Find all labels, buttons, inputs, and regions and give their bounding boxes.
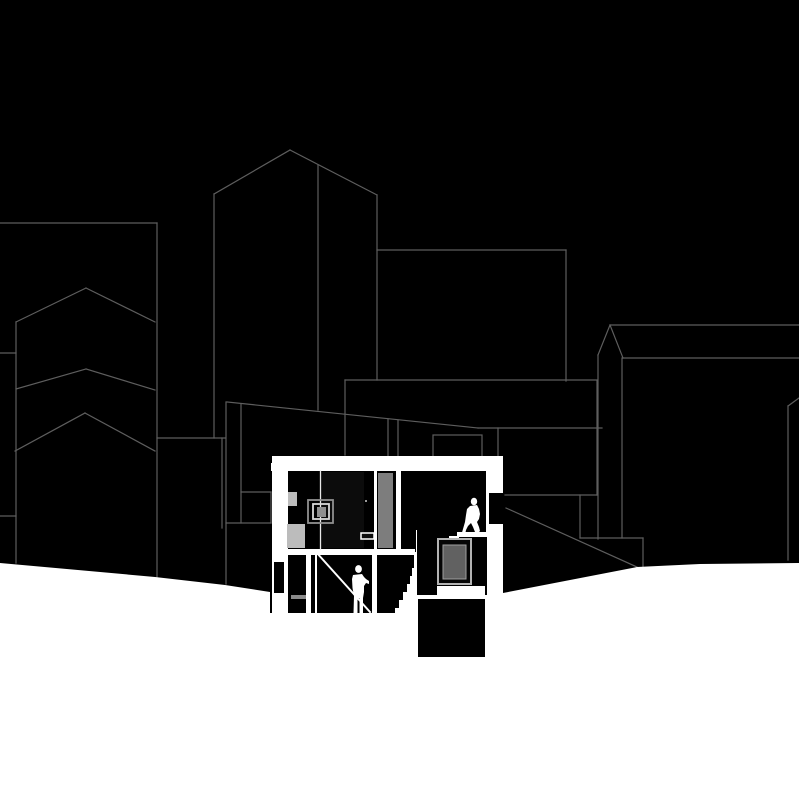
door-panel <box>321 472 364 548</box>
basement-slit <box>437 586 485 595</box>
stair-room-stud-2 <box>315 555 317 613</box>
section-drawing <box>0 0 799 800</box>
shelf-outline <box>361 533 374 539</box>
wall-art-square-center <box>317 507 326 517</box>
wardrobe-panel <box>378 473 393 548</box>
basement-block <box>418 599 485 657</box>
stair-room-stud-1 <box>306 555 311 613</box>
figure-walking-head <box>471 498 477 506</box>
wall-block-upper <box>288 492 297 506</box>
section-roof-band <box>271 456 503 471</box>
figure-standing-head <box>355 565 362 573</box>
chimney-outline <box>433 435 482 458</box>
wardrobe-gap-left <box>374 471 377 549</box>
right-light-well <box>487 537 503 595</box>
wall-block-lower <box>287 524 305 548</box>
section-drawing-canvas <box>0 0 799 800</box>
stair-room-step-gray <box>291 595 306 599</box>
mid-floor-slab <box>288 549 417 555</box>
right-wall-window-opening <box>489 493 503 524</box>
lightwell-window-pane <box>443 545 466 579</box>
door-handle-dot <box>365 500 367 502</box>
left-wall-window-opening <box>274 562 284 593</box>
wardrobe-gap-right <box>396 471 401 549</box>
stair-room-stud-3 <box>372 555 377 613</box>
